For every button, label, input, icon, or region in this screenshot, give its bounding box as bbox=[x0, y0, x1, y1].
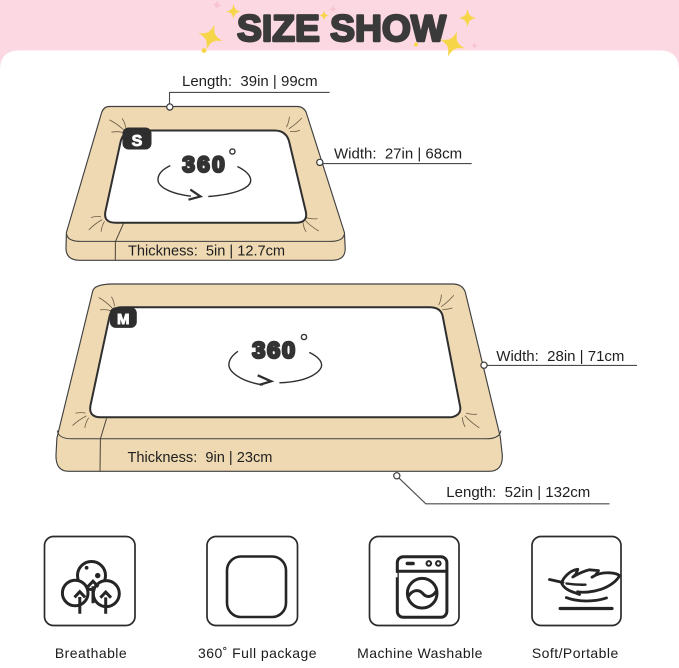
svg-text:Thickness: 9in | 23cm: Thickness: 9in | 23cm bbox=[128, 450, 273, 466]
svg-text:Width: 27in | 68cm: Width: 27in | 68cm bbox=[334, 146, 462, 163]
svg-text:360: 360 bbox=[182, 152, 227, 177]
svg-text:Soft/Portable: Soft/Portable bbox=[532, 645, 619, 661]
svg-text:Length: 39in | 99cm: Length: 39in | 99cm bbox=[182, 73, 318, 90]
svg-text:Width: 28in | 71cm: Width: 28in | 71cm bbox=[496, 348, 624, 365]
svg-text:360˚ Full package: 360˚ Full package bbox=[198, 645, 317, 661]
svg-text:Length: 52in | 132cm: Length: 52in | 132cm bbox=[446, 484, 590, 501]
svg-text:Thickness: 5in | 12.7cm: Thickness: 5in | 12.7cm bbox=[128, 244, 285, 260]
svg-text:Machine Washable: Machine Washable bbox=[357, 645, 483, 661]
svg-text:SIZE SHOW: SIZE SHOW bbox=[237, 8, 446, 49]
svg-text:Breathable: Breathable bbox=[55, 645, 127, 661]
svg-text:360: 360 bbox=[252, 337, 297, 363]
svg-text:M: M bbox=[117, 311, 130, 328]
svg-text:S: S bbox=[132, 133, 143, 150]
